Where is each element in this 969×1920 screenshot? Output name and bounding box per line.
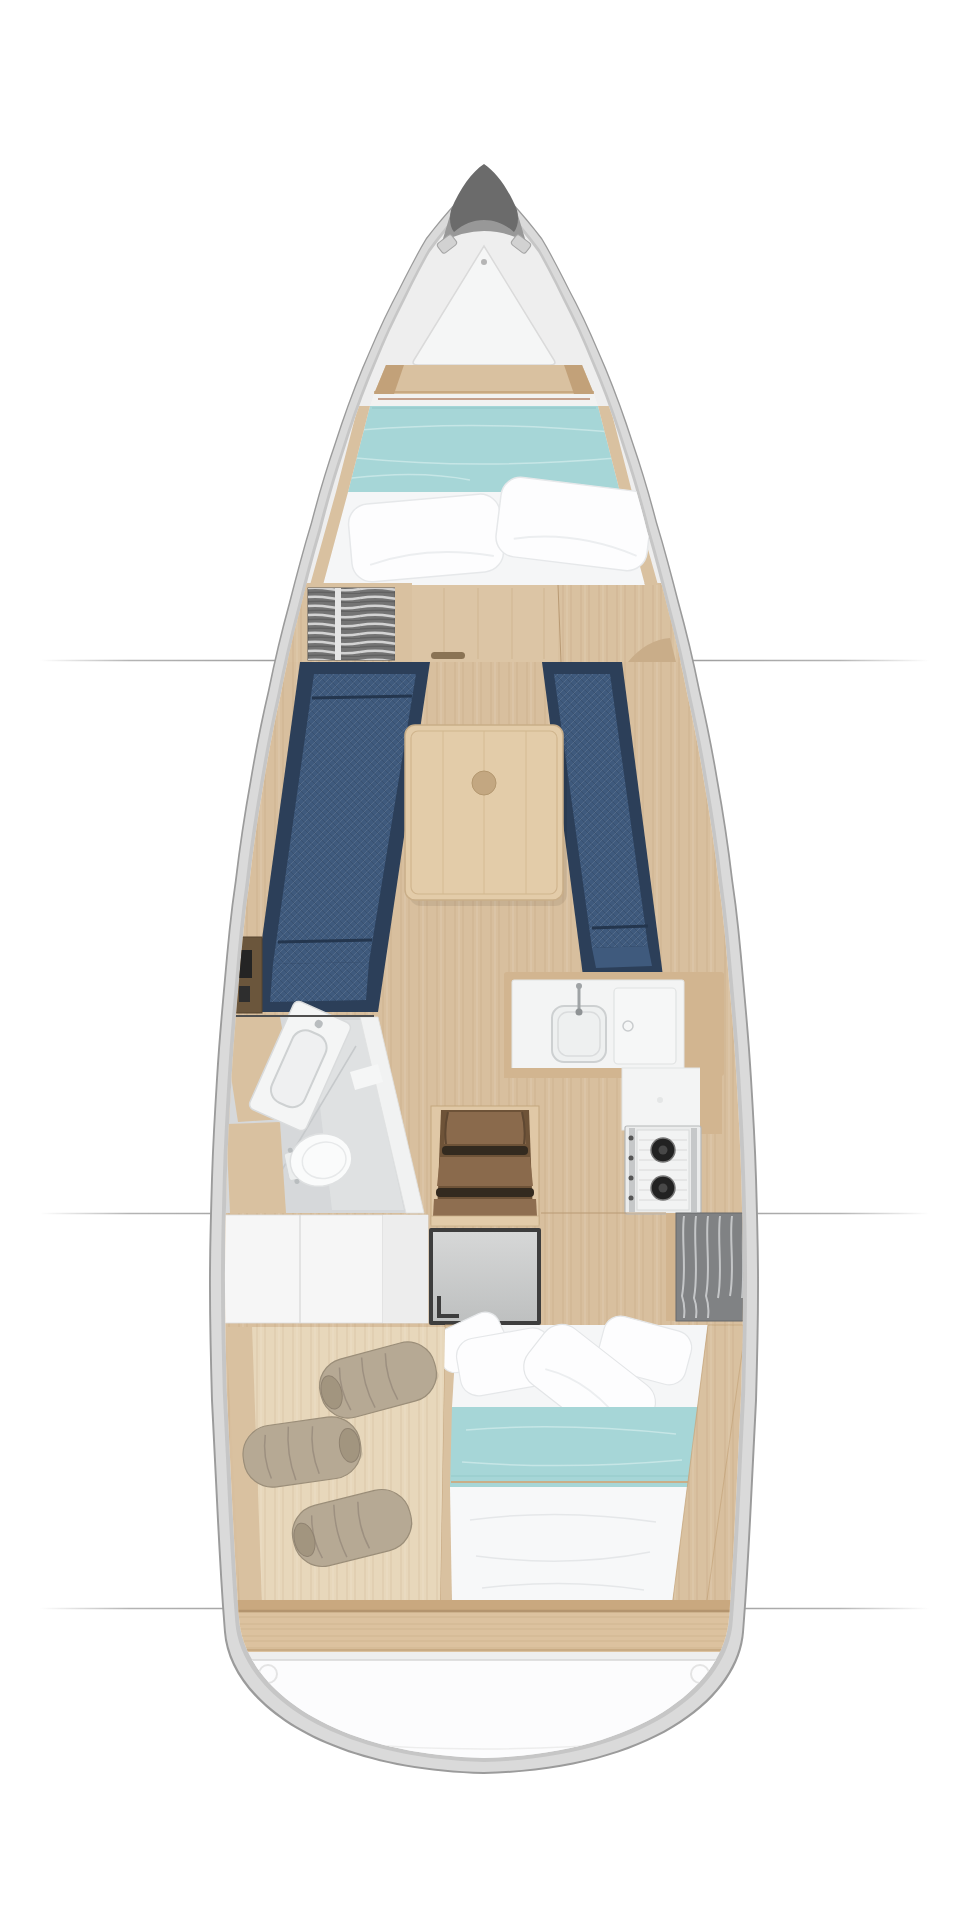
hanging-locker-forward [308,586,412,662]
port-lockers [216,1215,428,1323]
yacht-floor-plan-page [0,0,969,1920]
transom [226,1600,748,1759]
sail-locker [226,1327,445,1604]
wardrobe-aft-starboard [666,1213,754,1321]
stove-knob [629,1196,634,1201]
counter-edge-trim [504,1068,626,1078]
vberth-blanket [348,406,620,492]
wardrobe-trim [666,1213,676,1321]
transom-edge-strip [230,1600,744,1610]
door-handle [431,652,465,659]
head-cabinet-aft [226,1122,286,1213]
table-cup-recess [472,771,496,795]
step-kick-plate [431,1216,539,1226]
locker-side-trim [395,586,412,662]
step-tread-2 [437,1157,533,1186]
yacht-floor-plan [0,0,969,1920]
step-tread-3 [433,1199,537,1216]
stove-knob [629,1156,634,1161]
forestay-fitting [481,259,487,265]
cushion-seam [312,696,412,698]
stove-knob [629,1176,634,1181]
vberth-pillow-left [347,492,505,583]
faucet-base [576,1009,583,1016]
cushion-seam [592,926,648,928]
companionway-steps [431,1106,539,1226]
engine-box [429,1228,541,1325]
swim-platform [244,1660,724,1759]
cushion-seam-aft [278,940,372,942]
stove [625,1126,701,1214]
forward-bulkhead [280,583,690,662]
vberth-head-board [374,365,594,394]
step-tread-1 [444,1112,526,1144]
saloon-table [405,725,567,906]
aft-blanket [450,1407,698,1487]
faucet-head [576,983,582,989]
step-gap [442,1146,528,1155]
l-counter-trim [700,1060,722,1134]
aft-duvet [450,1487,688,1607]
engine-latch [437,1314,459,1318]
starboard-settee-end-cushion [592,946,652,968]
stove-knob [629,1136,634,1141]
locker-panel-tint [383,1215,428,1323]
locker-divider [335,588,341,660]
vberth-sheet-strip [370,394,598,406]
cabin-door [392,585,558,662]
counter-dot [657,1097,663,1103]
step-gap [436,1188,534,1197]
gimbal-rail [691,1128,697,1212]
aft-cabin [429,1307,746,1607]
